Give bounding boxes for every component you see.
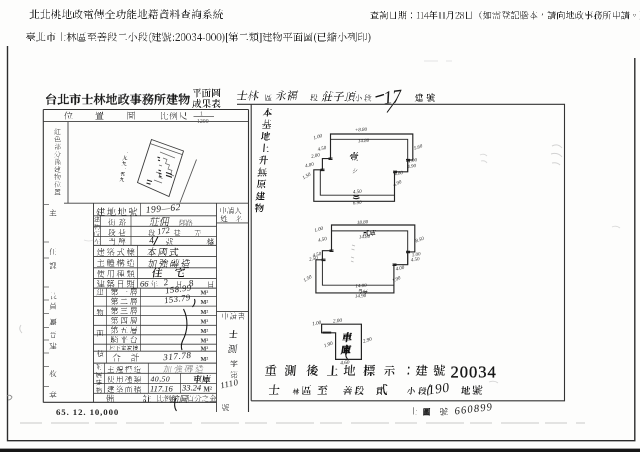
svg-text:66: 66 bbox=[140, 279, 149, 289]
svg-text:172: 172 bbox=[156, 225, 171, 237]
svg-text:117.16: 117.16 bbox=[150, 384, 173, 394]
svg-text:4.80: 4.80 bbox=[394, 171, 404, 178]
svg-text:+8.80: +8.80 bbox=[355, 128, 368, 134]
svg-text:4.50: 4.50 bbox=[411, 257, 421, 263]
svg-text:14.00: 14.00 bbox=[355, 284, 367, 290]
svg-text:4.90: 4.90 bbox=[407, 164, 417, 170]
svg-text:8.50: 8.50 bbox=[415, 237, 425, 245]
svg-text:14.80: 14.80 bbox=[359, 235, 371, 241]
svg-text:14.90: 14.90 bbox=[355, 294, 367, 300]
svg-text:1.50: 1.50 bbox=[303, 275, 314, 284]
svg-text:1.90: 1.90 bbox=[392, 276, 402, 284]
svg-text:4.50: 4.50 bbox=[318, 237, 328, 244]
svg-text:2.90: 2.90 bbox=[362, 336, 373, 345]
svg-text:153.79: 153.79 bbox=[164, 292, 192, 305]
svg-text:5.60: 5.60 bbox=[413, 144, 423, 152]
svg-text:1.00: 1.00 bbox=[314, 226, 324, 234]
svg-text:4.60: 4.60 bbox=[340, 359, 350, 367]
svg-text:40,50: 40,50 bbox=[151, 375, 171, 384]
svg-text:1.90: 1.90 bbox=[323, 340, 334, 349]
svg-text:2.00: 2.00 bbox=[311, 153, 321, 160]
svg-text:14.80: 14.80 bbox=[358, 139, 370, 145]
svg-text:M²: M² bbox=[201, 356, 209, 363]
svg-text:M²: M² bbox=[201, 290, 209, 297]
svg-text:199—62: 199—62 bbox=[145, 203, 181, 216]
svg-text:M²: M² bbox=[201, 318, 209, 325]
svg-text:M²: M² bbox=[201, 328, 209, 335]
svg-text:M²: M² bbox=[204, 387, 212, 394]
svg-text:660899: 660899 bbox=[454, 402, 494, 418]
svg-text:4.00: 4.00 bbox=[395, 266, 405, 273]
svg-text:4.00: 4.00 bbox=[305, 162, 315, 169]
svg-text:M²: M² bbox=[201, 337, 209, 344]
svg-text:190: 190 bbox=[427, 380, 451, 398]
svg-text:4.50: 4.50 bbox=[317, 146, 327, 153]
svg-text:4.50: 4.50 bbox=[353, 190, 363, 196]
svg-text:6.90: 6.90 bbox=[353, 201, 363, 207]
svg-text:317.78: 317.78 bbox=[162, 350, 192, 363]
svg-text:1.00: 1.00 bbox=[313, 134, 323, 142]
svg-text:1110: 1110 bbox=[219, 377, 239, 391]
svg-text:M²: M² bbox=[201, 309, 209, 316]
svg-text:M²: M² bbox=[201, 299, 209, 306]
svg-text:1.50: 1.50 bbox=[302, 172, 313, 181]
svg-text:1200: 1200 bbox=[197, 119, 209, 125]
svg-text:M²: M² bbox=[201, 345, 209, 352]
svg-text:65. 12. 10,000: 65. 12. 10,000 bbox=[56, 407, 119, 417]
svg-text:20034: 20034 bbox=[451, 363, 497, 382]
svg-text:33.24: 33.24 bbox=[181, 383, 202, 393]
svg-text:17: 17 bbox=[382, 87, 404, 109]
svg-text:2.00: 2.00 bbox=[333, 318, 343, 325]
svg-text:2.50: 2.50 bbox=[309, 256, 319, 263]
svg-text:18.80: 18.80 bbox=[357, 220, 369, 226]
svg-text:1.00: 1.00 bbox=[312, 320, 322, 328]
